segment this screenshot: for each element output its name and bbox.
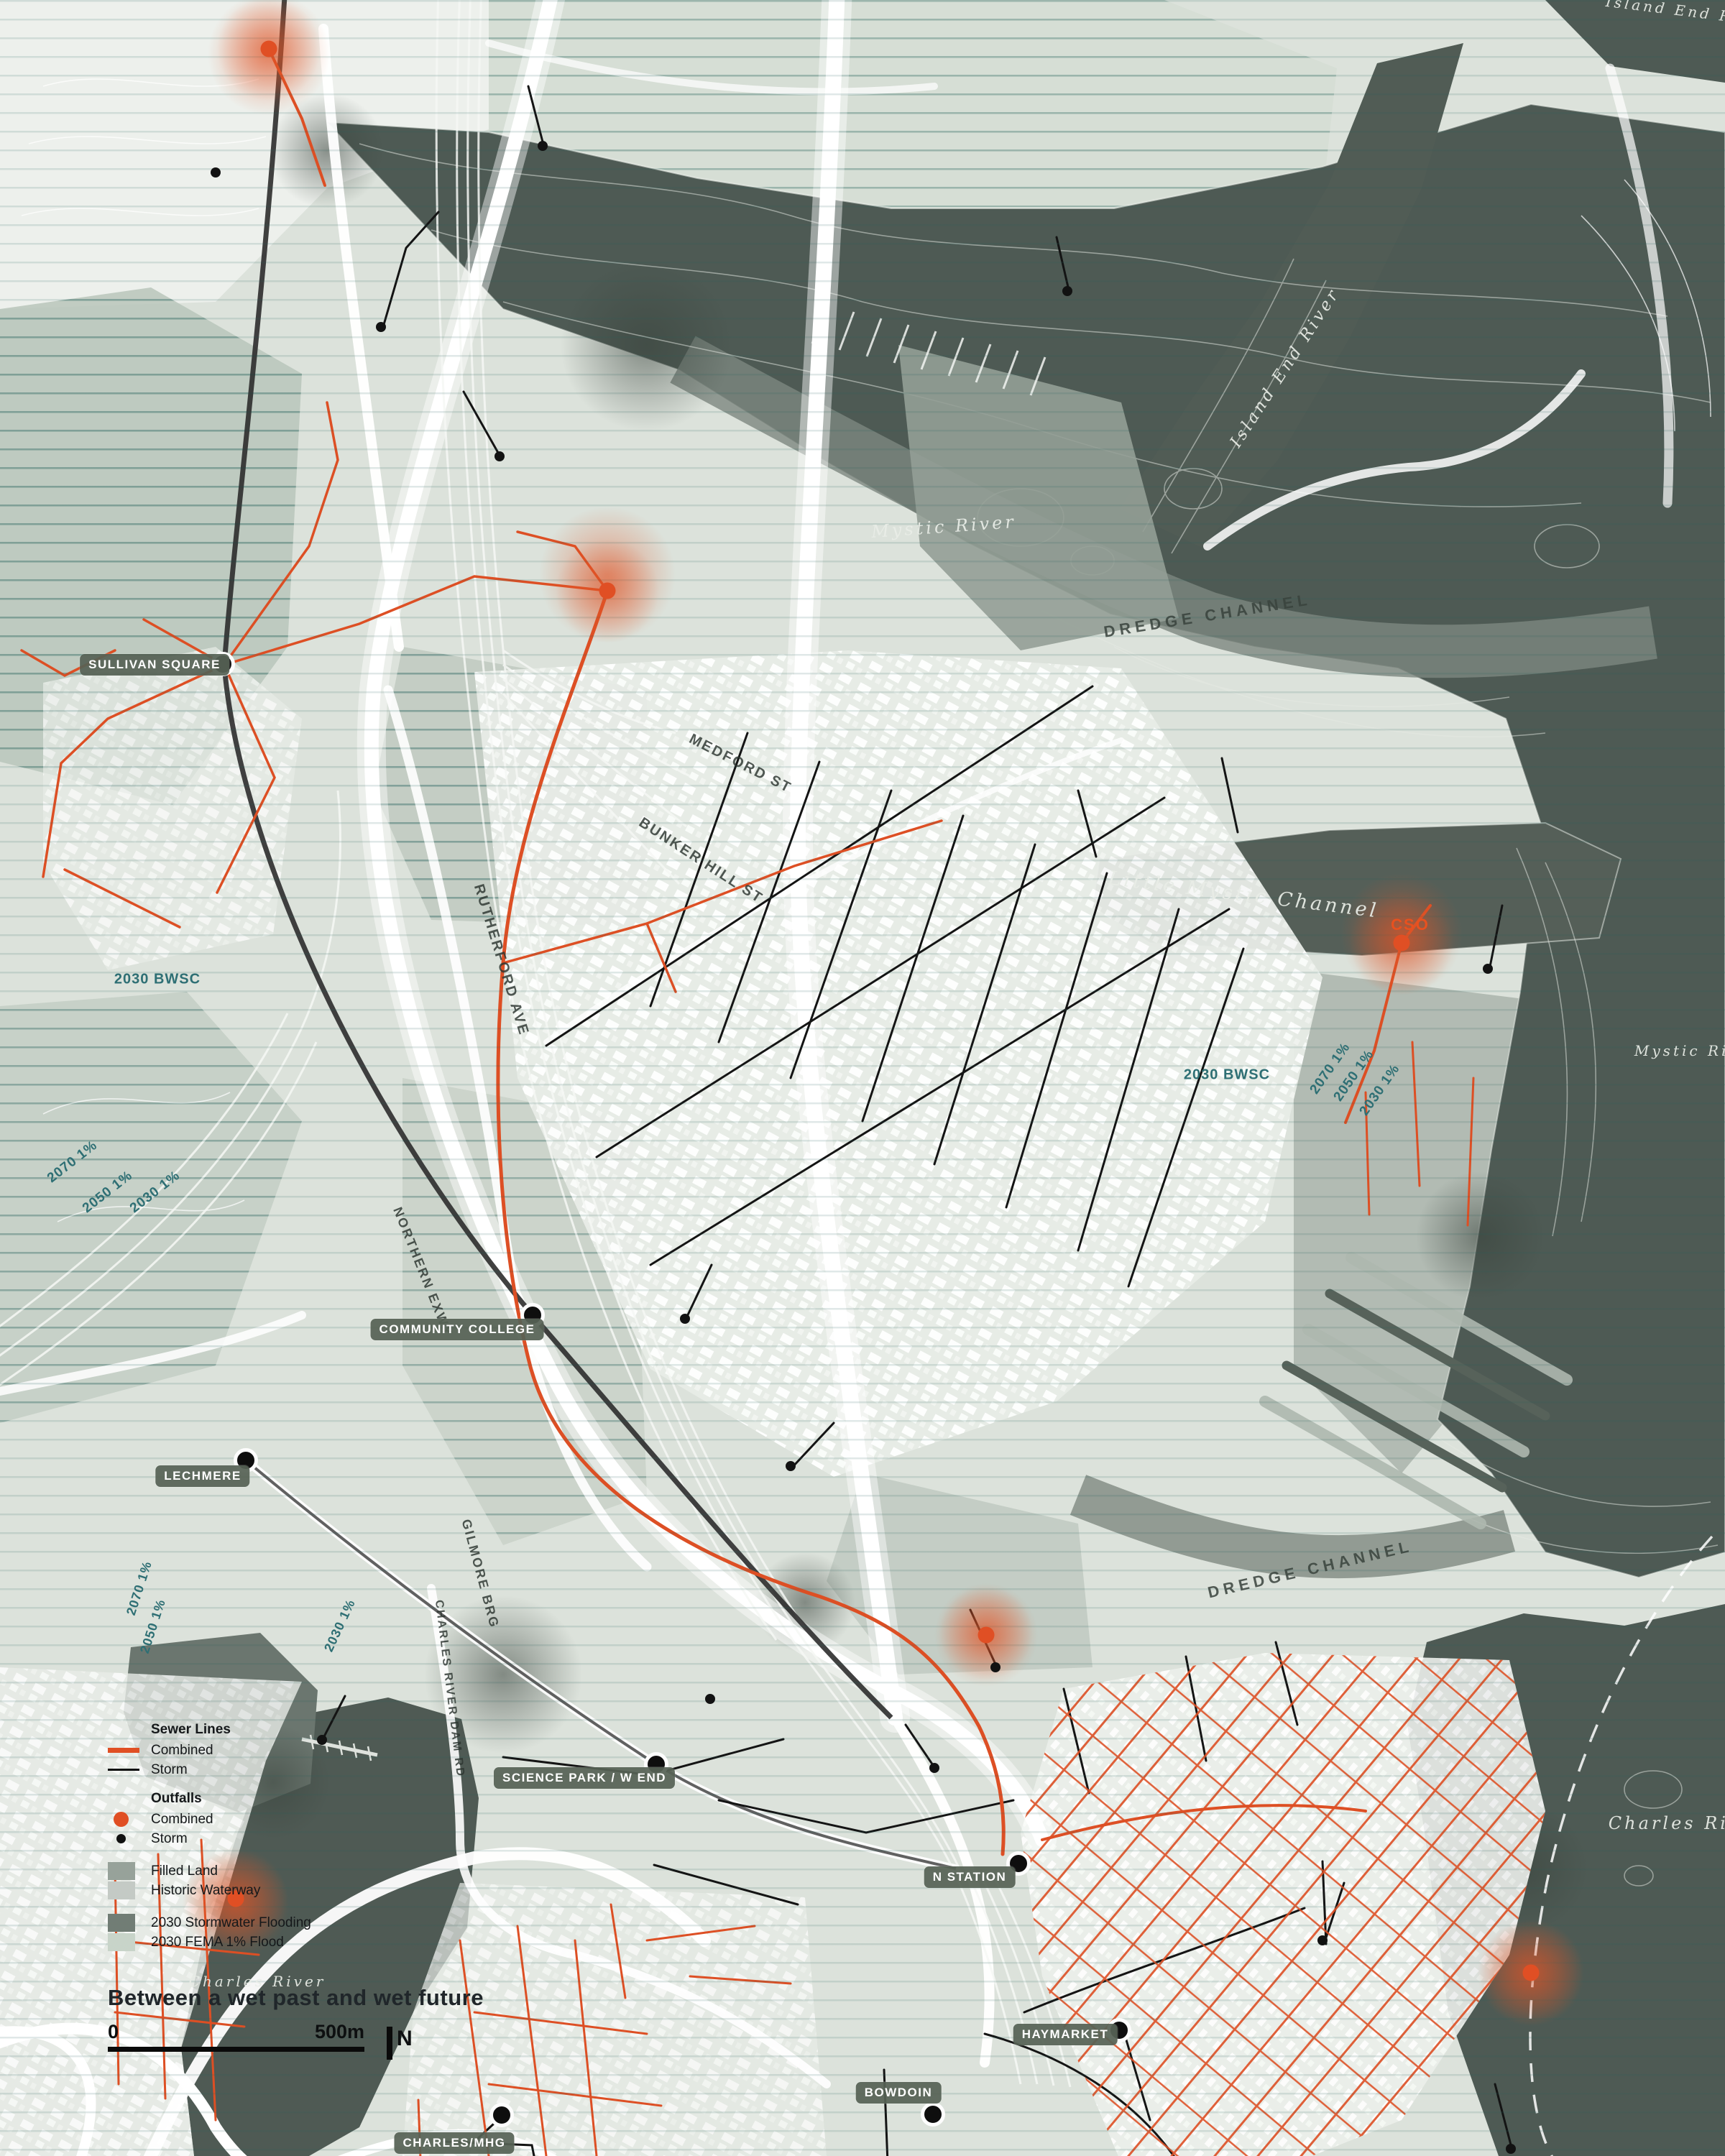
legend-combined-outfall: Combined — [108, 1810, 311, 1829]
combined-line-swatch — [108, 1748, 141, 1753]
scale-rule — [108, 2047, 364, 2052]
filled-land-swatch — [108, 1862, 141, 1880]
north-arrow: N — [387, 2027, 413, 2060]
legend-filled-land: Filled Land — [108, 1861, 311, 1881]
combined-outfall-swatch — [108, 1812, 141, 1827]
north-label: N — [397, 2027, 413, 2051]
legend-storm-outfall: Storm — [108, 1829, 311, 1848]
station-label-haymarket: HAYMARKET — [1013, 2024, 1118, 2045]
north-arrow-bar — [387, 2027, 392, 2060]
station-label-sullivan-square: SULLIVAN SQUARE — [80, 654, 229, 676]
station-label-lechmere: LECHMERE — [155, 1465, 249, 1487]
legend-stormwater-flooding: 2030 Stormwater Flooding — [108, 1913, 311, 1932]
legend-combined-line: Combined — [108, 1741, 311, 1760]
legend-storm-line: Storm — [108, 1760, 311, 1779]
fema-flood-swatch — [108, 1933, 141, 1951]
station-label-community-college: COMMUNITY COLLEGE — [371, 1319, 544, 1340]
page-title: Between a wet past and wet future — [108, 1985, 484, 2011]
legend-fema-flood: 2030 FEMA 1% Flood — [108, 1932, 311, 1952]
station-label-bowdoin: BOWDOIN — [856, 2082, 942, 2104]
map-viewport: Mystic RiverMystic RiverLittle Mystic Ch… — [0, 0, 1725, 2156]
station-label-charles-mhg: CHARLES/MHG — [394, 2132, 514, 2154]
scale-start: 0 — [108, 2021, 119, 2043]
legend-historic-waterway: Historic Waterway — [108, 1881, 311, 1900]
legend-sewer-heading: Sewer Lines — [108, 1719, 311, 1741]
storm-line-swatch — [108, 1769, 141, 1771]
scale-bar: 0 500m N — [108, 2021, 446, 2052]
station-dot-charles-mhg — [489, 2103, 514, 2127]
scale-end: 500m — [315, 2021, 364, 2043]
station-label-science-park-w-end: SCIENCE PARK / W END — [494, 1767, 675, 1789]
legend-outfalls-heading: Outfalls — [108, 1788, 311, 1810]
station-dot-bowdoin — [921, 2102, 945, 2127]
stormwater-flooding-swatch — [108, 1914, 141, 1932]
historic-waterway-swatch — [108, 1881, 141, 1899]
station-label-n-station: N STATION — [924, 1866, 1016, 1888]
legend: Sewer Lines Combined Storm Outfalls Comb… — [108, 1719, 311, 1952]
storm-outfall-swatch — [108, 1834, 141, 1843]
